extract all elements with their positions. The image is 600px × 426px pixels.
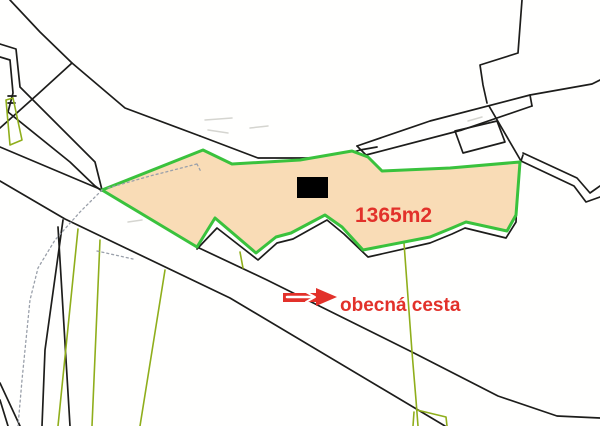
field-line bbox=[240, 252, 243, 268]
field-line bbox=[92, 240, 100, 426]
faint-mark bbox=[250, 126, 268, 128]
boundary-line bbox=[357, 80, 600, 146]
faint-mark bbox=[205, 118, 232, 120]
boundary-line bbox=[0, 383, 20, 426]
parcel-area-label: 1365m2 bbox=[355, 204, 432, 227]
field-lines-layer bbox=[6, 98, 447, 426]
boundary-line bbox=[455, 121, 505, 153]
boundary-line bbox=[0, 57, 102, 191]
boundary-line bbox=[530, 95, 532, 106]
field-line bbox=[413, 412, 414, 426]
boundary-line bbox=[0, 400, 8, 426]
annotation-layer bbox=[283, 288, 337, 306]
faint-mark bbox=[128, 220, 142, 222]
faint-mark bbox=[208, 130, 228, 133]
building-footprint bbox=[297, 177, 328, 198]
dotted-line bbox=[18, 190, 102, 426]
road-label: obecná cesta bbox=[340, 295, 461, 316]
parcel-polygon bbox=[102, 150, 520, 253]
faint-mark bbox=[468, 117, 482, 121]
field-line bbox=[140, 270, 165, 426]
highlighted-parcel-layer bbox=[102, 150, 520, 253]
boundary-line bbox=[10, 0, 200, 136]
road-arrow-icon bbox=[316, 288, 337, 306]
boundary-line bbox=[523, 153, 600, 193]
boundary-line bbox=[489, 106, 521, 161]
dotted-line bbox=[97, 251, 133, 259]
boundary-line bbox=[366, 106, 532, 155]
cadastral-map: 1365m2 obecná cesta bbox=[0, 0, 600, 426]
boundary-line bbox=[521, 161, 600, 202]
cadastral-map-canvas: 1365m2 obecná cesta bbox=[0, 0, 600, 426]
field-line bbox=[404, 243, 418, 426]
boundary-line bbox=[480, 0, 522, 103]
